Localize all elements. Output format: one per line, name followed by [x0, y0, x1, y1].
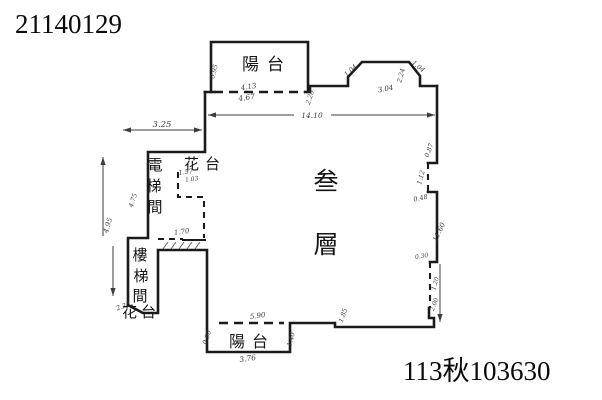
dim-1-70: 1.70 — [173, 227, 190, 237]
stair-room-char-3: 間 — [132, 289, 147, 305]
elevator-room-char-2: 梯 — [146, 178, 161, 195]
dim-4-67: 4.67 — [237, 92, 256, 103]
dim-1-12: 1.12 — [415, 169, 426, 185]
dim-0-48: 0.48 — [413, 193, 429, 204]
case-number: 113秋103630 — [403, 356, 551, 386]
dim-0-30: 0.30 — [415, 252, 430, 261]
stair-room-char-1: 樓 — [132, 247, 147, 264]
dim-4-13: 4.13 — [239, 82, 257, 92]
elevator-room-char-1: 電 — [147, 158, 162, 174]
dim-5-90: 5.90 — [249, 311, 266, 321]
dim-11-60: 11.60 — [431, 221, 447, 243]
top-balcony-label: 陽台 — [242, 55, 292, 74]
dim-2-24: 2.24 — [395, 67, 407, 84]
floor-label-char-1: 叁 — [313, 168, 338, 196]
dim-1-20: 1.20 — [430, 276, 440, 291]
dim-14-10: 14.10 — [301, 111, 323, 120]
dimension-lines — [103, 115, 440, 322]
dim-4-95: 4.95 — [102, 216, 115, 235]
dim-1-03: 1.03 — [185, 175, 199, 184]
dim-1-85: 1.85 — [337, 307, 349, 323]
dim-1-40: 1.40 — [285, 331, 296, 347]
scanned-floor-plan-document: 陽台 陽台 花台 花台 電 梯 間 樓 梯 間 叁 層 3.25 14.10 4… — [0, 0, 602, 400]
elevator-room-char-3: 間 — [147, 200, 162, 216]
bottom-balcony-label: 陽台 — [229, 333, 275, 351]
dim-3-76: 3.76 — [239, 353, 257, 364]
left-and-bottom-walls — [128, 92, 434, 352]
document-number: 21140129 — [15, 9, 122, 39]
dim-3-04: 3.04 — [377, 84, 394, 95]
dim-4-75: 4.75 — [127, 192, 139, 209]
dim-0-90: 0.90 — [201, 329, 213, 345]
planter-hatching — [163, 242, 200, 249]
dim-0-87: 0.87 — [423, 141, 436, 158]
dim-3-25: 3.25 — [153, 120, 172, 130]
floor-plan-drawing: 陽台 陽台 花台 花台 電 梯 間 樓 梯 間 叁 層 3.25 14.10 4… — [0, 0, 602, 400]
floor-label-char-2: 層 — [313, 232, 338, 259]
stair-room-char-2: 梯 — [133, 268, 148, 285]
